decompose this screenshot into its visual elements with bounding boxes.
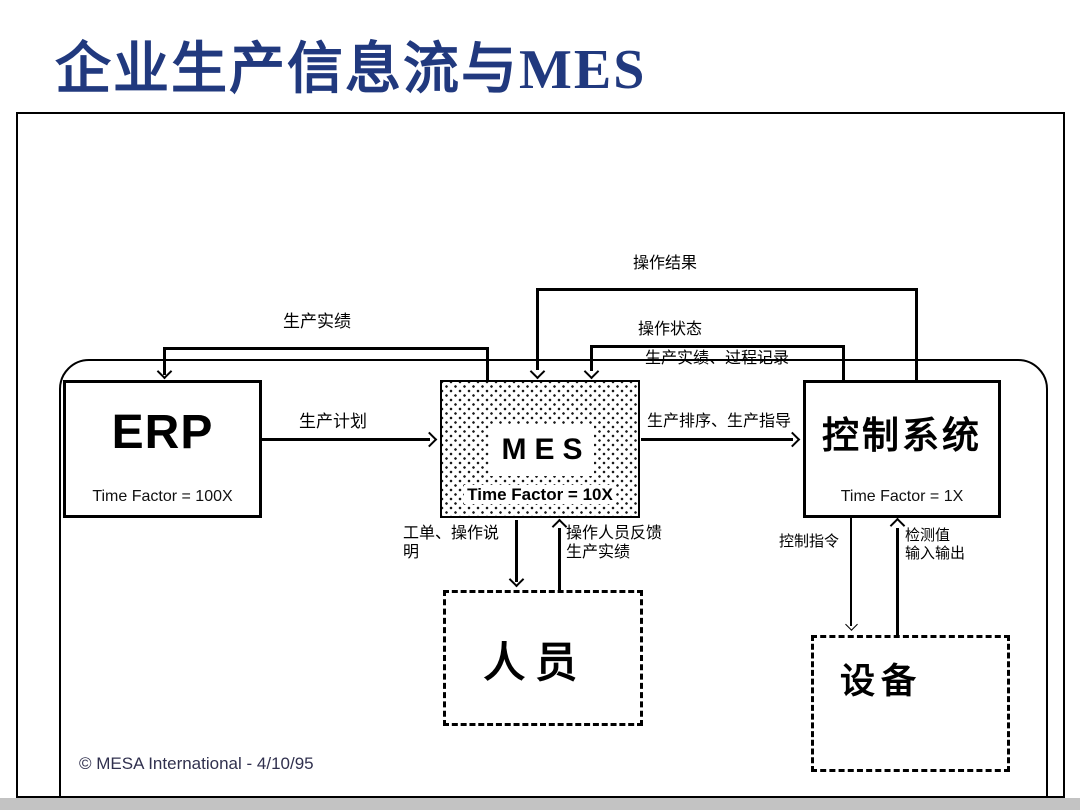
copyright: © MESA International - 4/10/95: [75, 754, 318, 774]
label-sequencing-guidance: 生产排序、生产指导: [647, 412, 791, 431]
personnel-box: 人员: [443, 590, 643, 726]
label-production-results-process-records: 生产实绩、过程记录: [645, 349, 789, 368]
label-operator-feedback: 操作人员反馈 生产实绩: [566, 524, 662, 562]
label-operator-feedback-line2: 生产实绩: [566, 543, 662, 562]
label-operator-feedback-line1: 操作人员反馈: [566, 524, 662, 543]
mes-time-factor-text: Time Factor = 10X: [464, 485, 616, 504]
mes-label: MES: [490, 424, 594, 476]
equipment-label: 设备: [840, 653, 922, 704]
line-production-plan: [262, 438, 430, 441]
label-control-instructions: 控制指令: [779, 533, 839, 551]
label-production-results: 生产实绩: [283, 312, 351, 332]
line-operator-feedback: [558, 528, 561, 590]
personnel-label: 人员: [446, 629, 624, 690]
control-system-label: 控制系统: [806, 405, 998, 459]
line-operation-results-left: [536, 288, 539, 370]
control-system-box: 控制系统 Time Factor = 1X: [803, 380, 1001, 518]
mes-box: MES Time Factor = 10X: [440, 380, 640, 518]
line-control-instructions: [850, 518, 852, 626]
line-production-results-up: [486, 347, 489, 381]
erp-time-factor: Time Factor = 100X: [66, 488, 259, 506]
line-operation-status-horizontal: [590, 345, 845, 348]
line-operation-results-horizontal: [536, 288, 918, 291]
line-production-results-horizontal: [163, 347, 489, 350]
label-production-plan: 生产计划: [299, 412, 367, 432]
label-measured-values: 检测值 输入输出: [905, 527, 965, 563]
slide: 企业生产信息流与MES ERP Time Factor = 100X MES T…: [0, 0, 1080, 810]
label-work-orders-line1: 工单、操作说: [403, 524, 499, 543]
label-work-orders: 工单、操作说 明: [403, 524, 499, 562]
label-measured-values-line1: 检测值: [905, 527, 965, 545]
mes-time-factor: Time Factor = 10X: [442, 485, 638, 505]
line-sequencing: [641, 438, 793, 441]
label-operation-status: 操作状态: [638, 320, 702, 339]
equipment-box: 设备: [811, 635, 1010, 772]
line-operation-results-right: [915, 288, 918, 381]
erp-label: ERP: [66, 405, 259, 460]
label-measured-values-line2: 输入输出: [905, 545, 965, 563]
bottom-strip: [0, 798, 1080, 810]
control-system-time-factor: Time Factor = 1X: [806, 488, 998, 506]
page-title: 企业生产信息流与MES: [55, 24, 646, 105]
line-measured-values: [896, 528, 899, 635]
label-operation-results: 操作结果: [633, 254, 697, 273]
erp-box: ERP Time Factor = 100X: [63, 380, 262, 518]
line-operation-status-right: [842, 345, 845, 381]
label-work-orders-line2: 明: [403, 543, 499, 562]
